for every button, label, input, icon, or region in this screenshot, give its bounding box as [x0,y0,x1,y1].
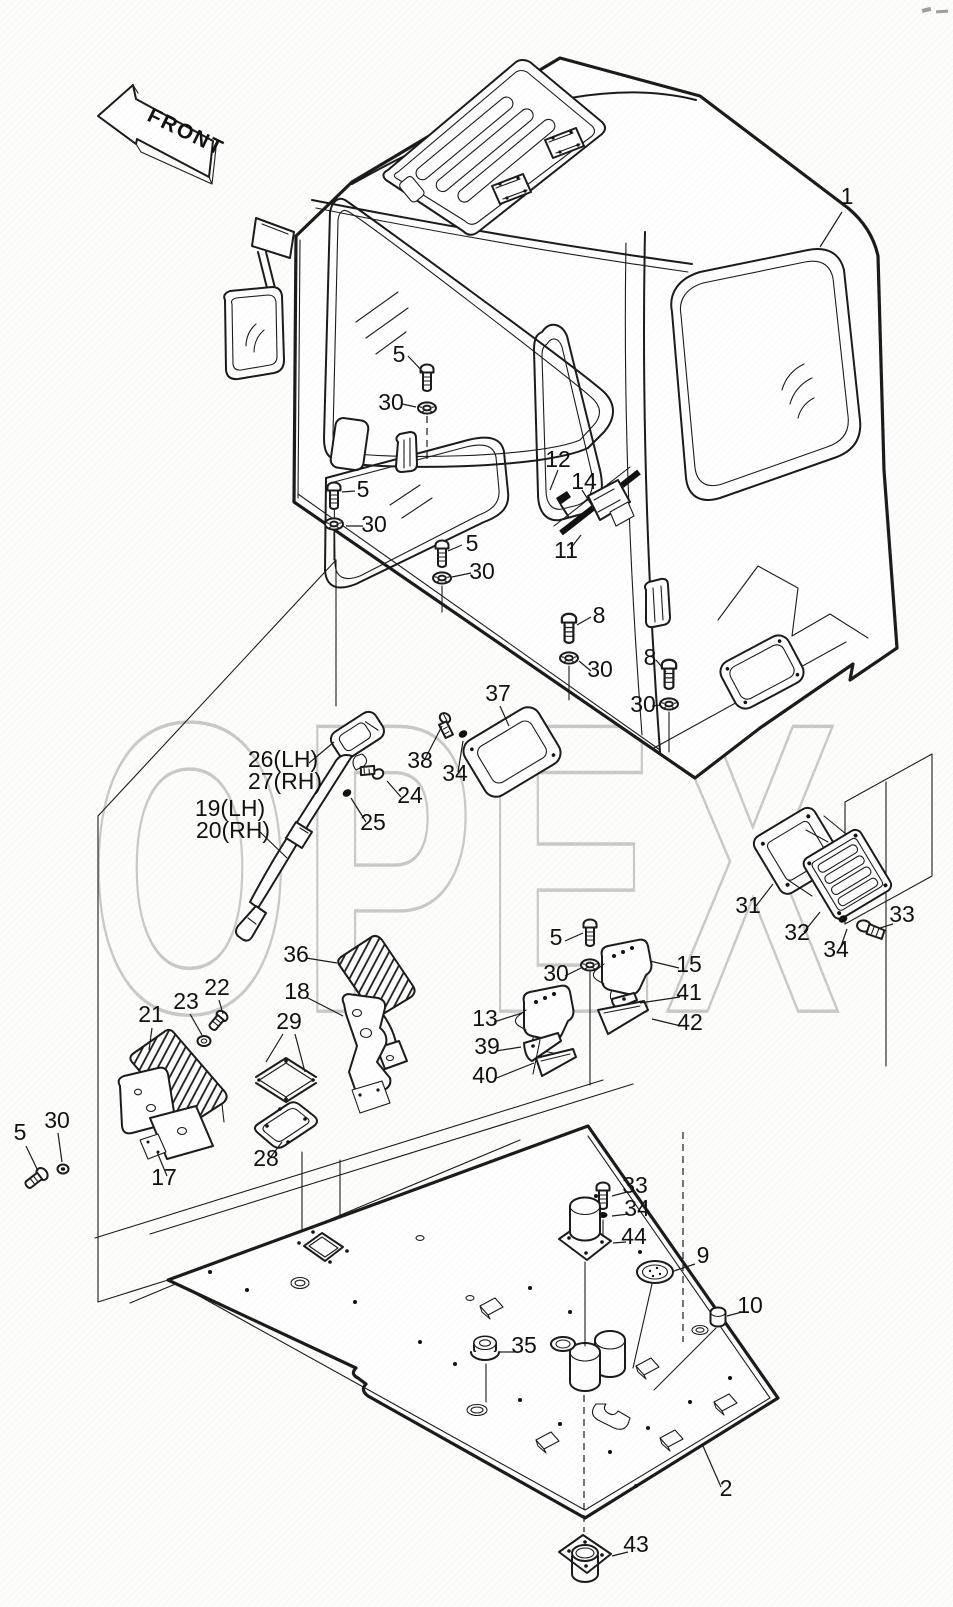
part-label-30: 30 [378,389,404,415]
part-label-25: 25 [360,809,386,835]
part-label-17: 17 [151,1164,177,1190]
part-label-44: 44 [621,1223,647,1249]
exploded-parts-diagram: OPEX [0,0,953,1607]
bolt-5 [584,920,597,947]
floor-plate-2 [168,1126,778,1518]
part-label-43: 43 [623,1531,649,1557]
door-latch-keeper [645,579,670,627]
cap-10 [711,1308,726,1327]
part-label-10: 10 [737,1292,763,1318]
bolt-8 [562,614,576,643]
part-label-40: 40 [472,1062,498,1088]
part-label-11: 11 [554,537,578,563]
washer-30 [325,518,343,529]
part-label-8: 8 [593,602,606,628]
part-label-30: 30 [44,1107,70,1133]
washer-30 [560,652,578,663]
corner-mark [922,7,948,14]
part-label-31: 31 [735,892,761,918]
part-label-30: 30 [361,511,387,537]
part-label-24: 24 [397,782,423,808]
door-latch-keeper [396,432,417,472]
part-label-14: 14 [571,468,597,494]
parts-diagram-page: OPEX [0,0,953,1607]
bolt-5 [421,365,434,392]
part-label-30: 30 [543,960,569,986]
part-label-33: 33 [889,901,915,927]
part-label-13: 13 [472,1005,498,1031]
part-label-42: 42 [677,1009,703,1035]
part-label-39: 39 [474,1033,500,1059]
washer-30 [660,698,678,709]
part-label-29: 29 [276,1008,302,1034]
floor-plate-assembly [168,1126,778,1582]
washer-30 [58,1165,69,1174]
part-label-23: 23 [173,988,199,1014]
mirror [224,218,294,379]
part-label-1: 1 [841,183,854,209]
part-label-36: 36 [283,941,309,967]
nut-23 [198,1036,211,1046]
part-label-32: 32 [784,919,810,945]
part-label-30: 30 [630,691,656,717]
part-label-34: 34 [823,936,849,962]
bolt-33 [855,919,885,939]
part-label-35: 35 [511,1332,537,1358]
part-label-38: 38 [407,747,433,773]
part-label-34: 34 [442,760,468,786]
part-label-28: 28 [253,1145,279,1171]
part-label-5: 5 [466,530,479,556]
part-label-12: 12 [545,446,571,472]
bolt-8 [662,660,676,689]
part-label-27(RH): 27(RH) [248,768,322,794]
washer-30 [581,959,599,970]
part-label-9: 9 [697,1242,710,1268]
pillar-vent [330,417,370,471]
part-label-30: 30 [587,656,613,682]
part-label-15: 15 [676,951,702,977]
plate-28 [255,1102,317,1148]
bolt-5 [23,1166,50,1191]
mount-43 [559,1535,611,1582]
part-label-5: 5 [550,924,563,950]
part-label-5: 5 [357,476,370,502]
part-label-5: 5 [393,341,406,367]
part-label-22: 22 [204,974,230,1000]
part-label-5: 5 [14,1119,27,1145]
bolt-5 [436,541,449,568]
part-label-21: 21 [138,1001,164,1027]
bolt-5 [328,483,341,510]
part-label-30: 30 [469,558,495,584]
part-label-41: 41 [676,979,702,1005]
washer-30 [418,402,436,413]
part-label-2: 2 [720,1475,733,1501]
plug-9 [637,1261,673,1283]
part-label-20(RH): 20(RH) [196,817,270,843]
grommet-35 [471,1337,499,1361]
washer-30 [433,572,451,583]
part-label-18: 18 [284,978,310,1004]
part-label-37: 37 [485,680,511,706]
part-label-8: 8 [644,644,657,670]
front-arrow: FRONT [98,85,228,184]
part-label-34: 34 [624,1195,650,1221]
